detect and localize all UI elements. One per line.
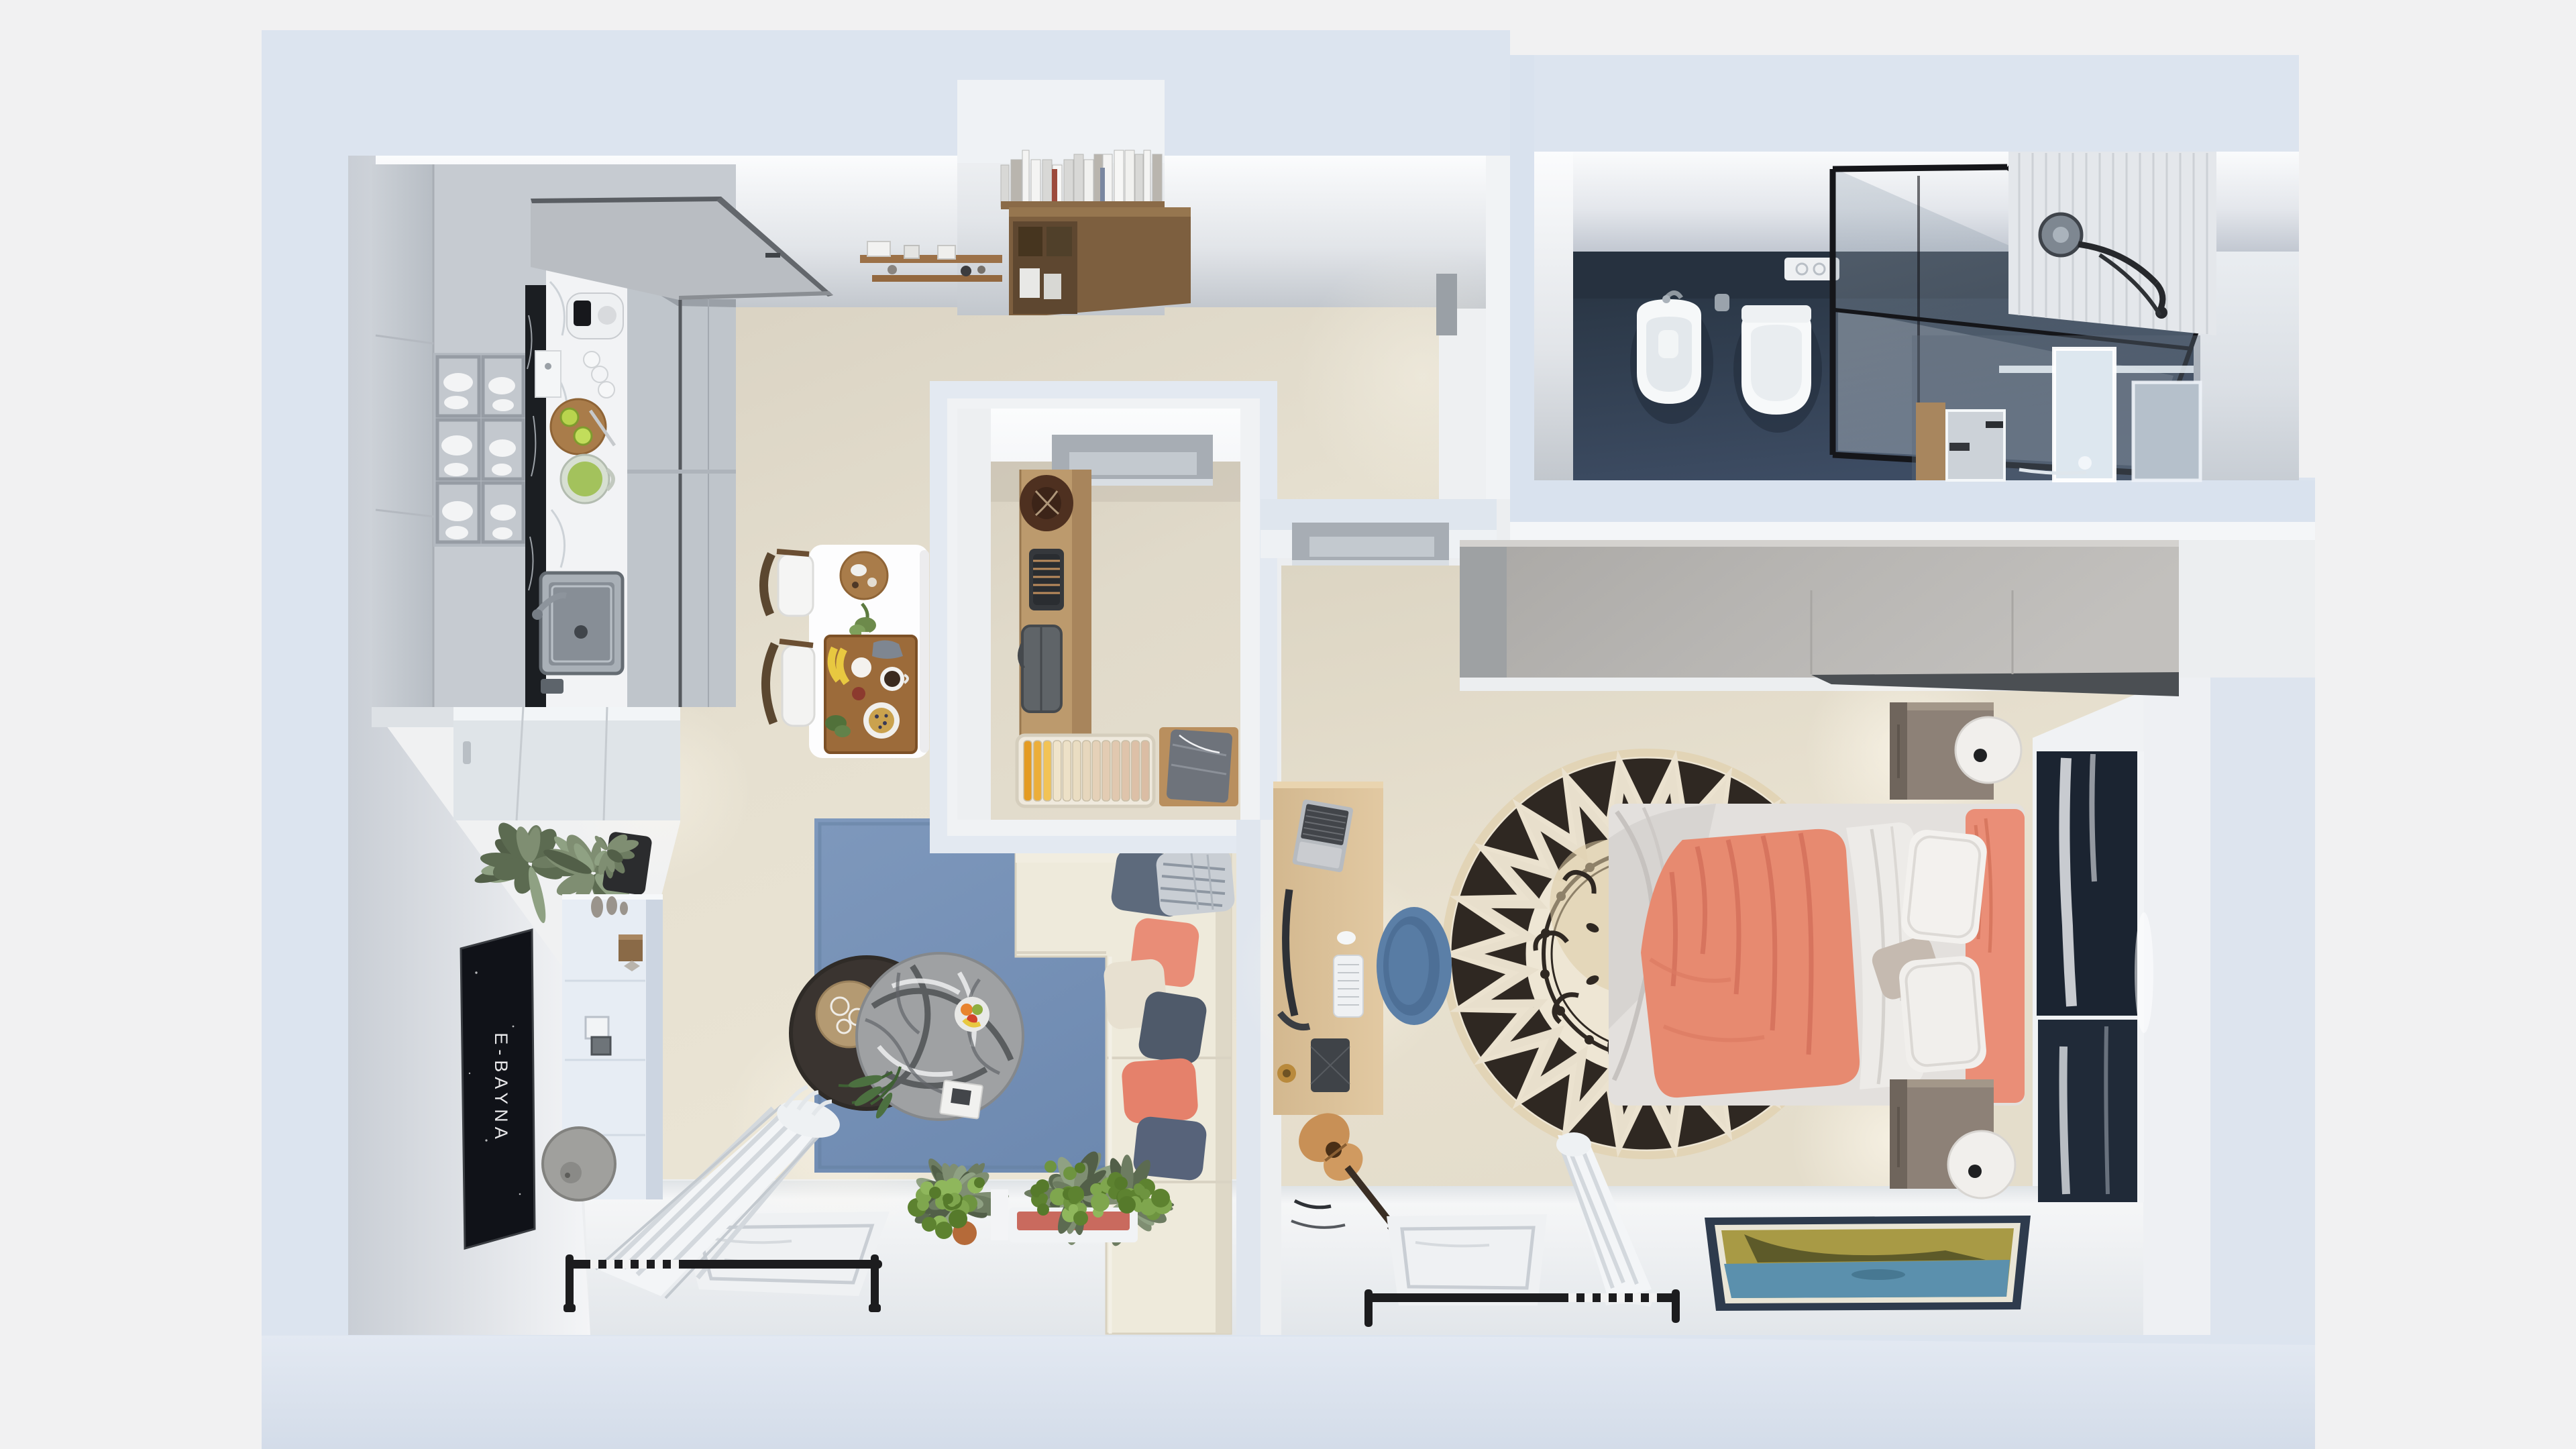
svg-text:E-BAYNA: E-BAYNA [491,1032,511,1144]
